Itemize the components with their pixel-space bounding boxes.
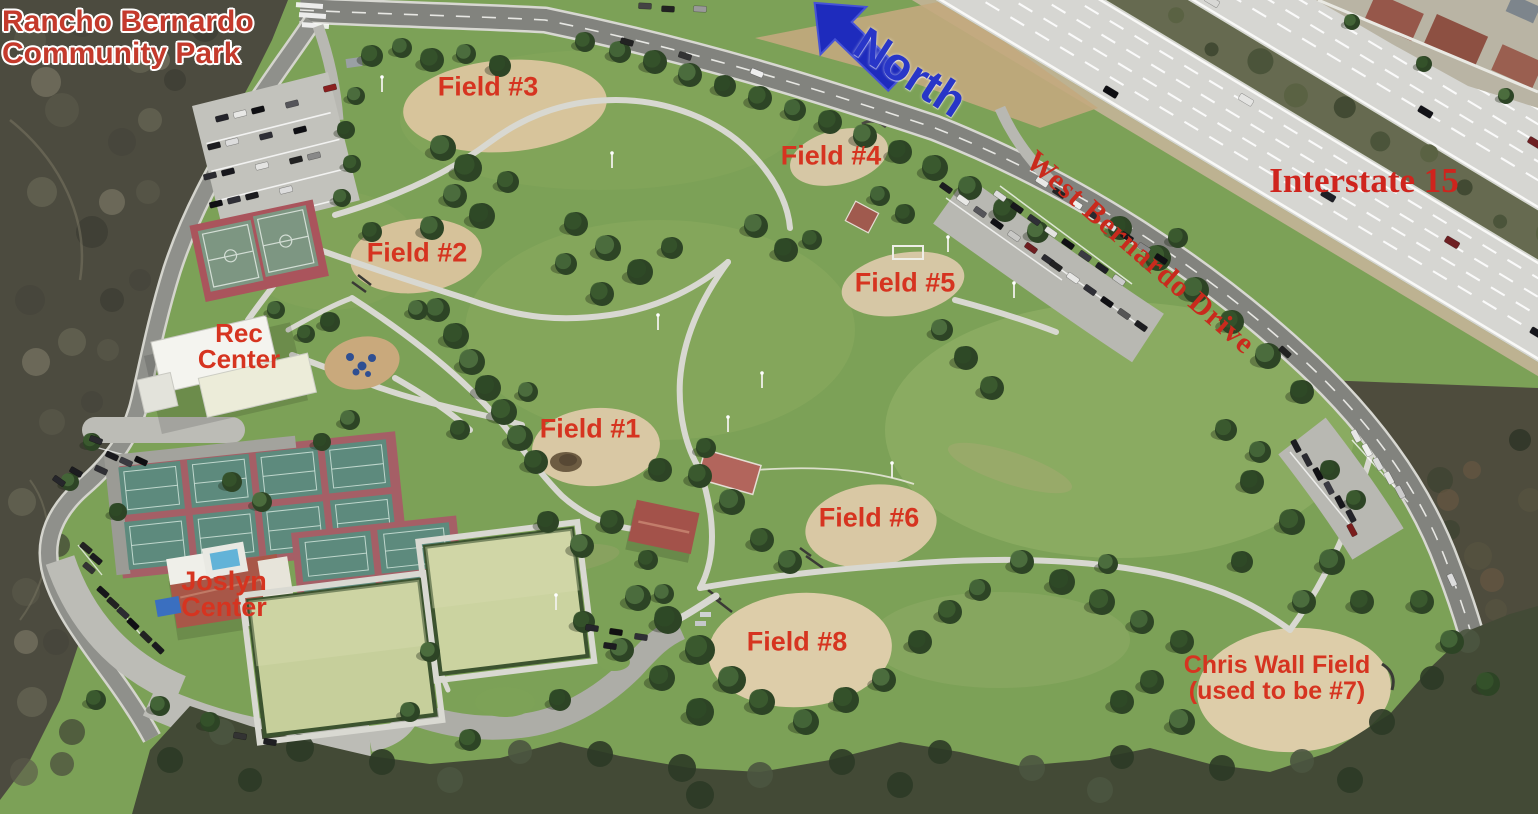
interstate-15-label: Interstate 15 — [1269, 161, 1459, 201]
park-title: Rancho Bernardo Community Park — [2, 6, 254, 70]
field-5-label: Field #5 — [855, 268, 956, 299]
field-8-label: Field #8 — [747, 627, 848, 658]
joslyn-center-label: Joslyn Center — [181, 568, 267, 620]
field-6-label: Field #6 — [819, 503, 920, 534]
park-title-line2: Community Park — [2, 38, 254, 70]
chris-wall-field-label: Chris Wall Field (used to be #7) — [1184, 652, 1371, 704]
field-2-label: Field #2 — [367, 238, 468, 269]
park-aerial-map: Rancho Bernardo Community Park North Wes… — [0, 0, 1538, 814]
field-3-label: Field #3 — [438, 72, 539, 103]
field-4-label: Field #4 — [781, 141, 882, 172]
rec-center-label: Rec Center — [198, 320, 280, 372]
park-title-line1: Rancho Bernardo — [2, 6, 254, 38]
field-1-label: Field #1 — [540, 414, 641, 445]
